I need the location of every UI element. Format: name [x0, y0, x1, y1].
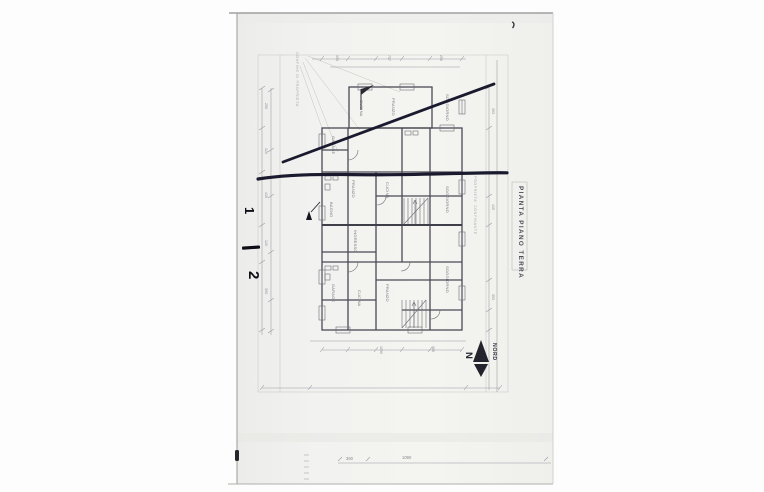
sheet-streak [237, 433, 553, 442]
room-label: SOGGIORNO [445, 266, 450, 293]
dimension-value: 757 [387, 55, 391, 61]
room-label: SOGGIORNO [445, 186, 450, 213]
dimension-value: 393 [491, 294, 495, 300]
compass-nord-label: NORD [491, 343, 497, 361]
outer-dim-small: 360 [346, 456, 354, 461]
edge-ink-blob [235, 450, 239, 461]
room-label: CUCINA [357, 290, 362, 307]
scan-canvas: 2501204151203931937572503934153931090360… [0, 0, 764, 492]
compass-n-letter: N [463, 352, 474, 359]
drawing-title: PIANTA PIANO TERRA [517, 186, 524, 279]
room-label: PRANZO [385, 284, 390, 302]
room-label: GARAGE [331, 284, 336, 302]
room-label: BAGNO [329, 202, 334, 217]
room-label: INGRESSO [353, 230, 358, 253]
room-label: CUCINA [359, 100, 364, 117]
dimension-value: 360 [431, 346, 435, 352]
dimension-value: 193 [335, 55, 339, 61]
dimension-value: 393 [264, 288, 268, 294]
sheet-top-shade [237, 13, 553, 23]
handwritten-1: 1 [242, 207, 257, 214]
outer-dim-large: 1090 [402, 455, 412, 460]
room-label: CUCINA [385, 182, 390, 199]
handwritten-2: 2 [245, 271, 262, 279]
scanned-sheet [228, 13, 553, 484]
dimension-value: 415 [264, 192, 268, 198]
room-label: SOGGIORNO [445, 94, 450, 121]
scanned-page-viewport: { "document": { "kind": "scanned archite… [0, 0, 764, 492]
dimension-value: 415 [491, 204, 495, 210]
dimension-value: 1090 [379, 346, 383, 354]
dimension-value: 393 [491, 108, 495, 114]
left-boundary-label: CONFINE DI PROPRIETA' [295, 52, 299, 108]
room-label: PRANZO [351, 180, 356, 198]
right-boundary-label: PROPRIETA' CONFINANTE [473, 176, 477, 235]
dimension-value: 120 [264, 240, 268, 246]
dimension-value: 120 [264, 148, 268, 154]
sheet-paper [237, 13, 553, 484]
room-label: PRANZO [391, 98, 396, 116]
dimension-value: 250 [264, 103, 268, 109]
dimension-value: 250 [439, 55, 443, 61]
